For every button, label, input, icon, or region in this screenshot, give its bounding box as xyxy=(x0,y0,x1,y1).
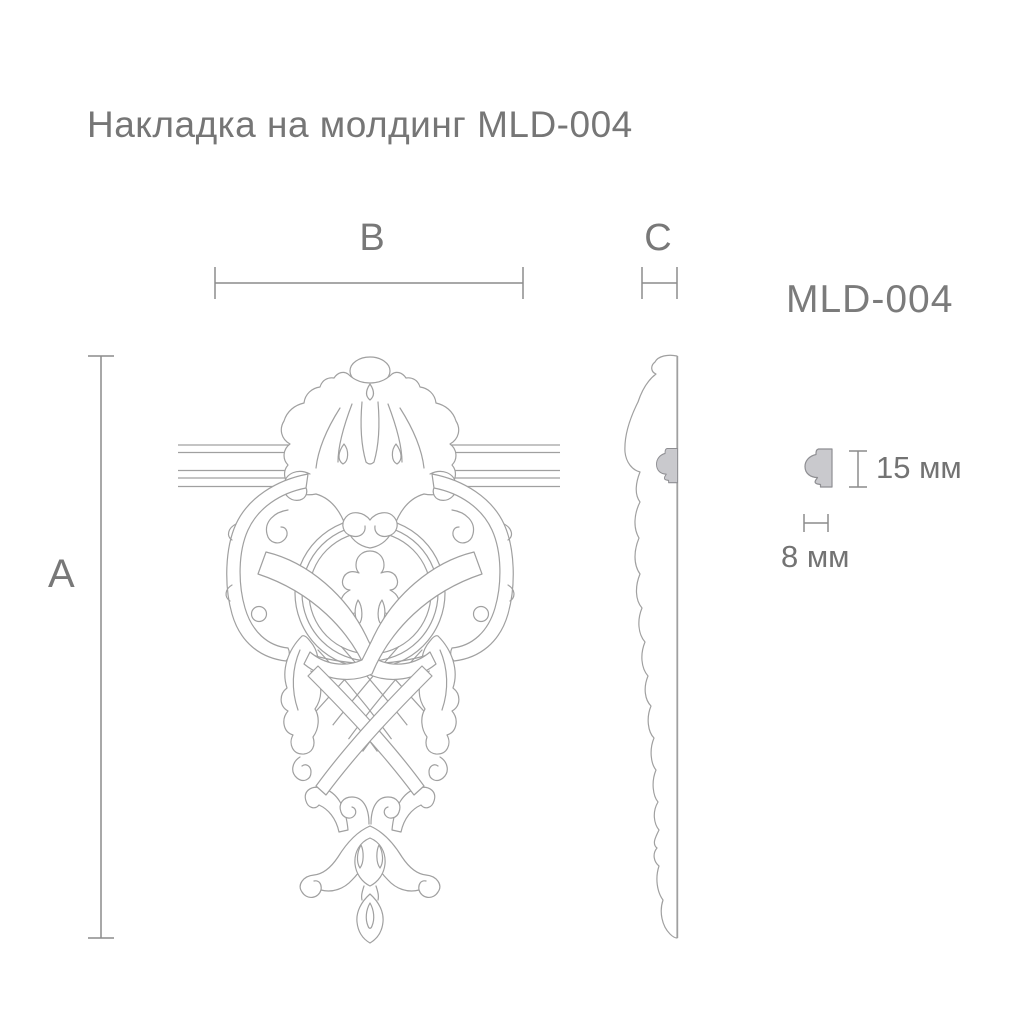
page-title: Накладка на молдинг MLD-004 xyxy=(87,106,633,143)
dimension-label-width: B xyxy=(347,219,397,257)
side-view xyxy=(625,355,678,938)
technical-drawing-page: Накладка на молдинг MLD-004 B C A MLD-00… xyxy=(0,0,1024,1024)
dimension-lines xyxy=(88,267,867,938)
front-view xyxy=(178,357,560,943)
profile-detail xyxy=(805,449,832,487)
product-code: MLD-004 xyxy=(786,280,953,319)
dimension-label-depth: C xyxy=(633,219,683,257)
drawing-svg xyxy=(0,0,1024,1024)
profile-height-value: 15 мм xyxy=(876,452,962,483)
profile-width-value: 8 мм xyxy=(781,541,849,572)
dimension-label-height: A xyxy=(48,554,75,594)
